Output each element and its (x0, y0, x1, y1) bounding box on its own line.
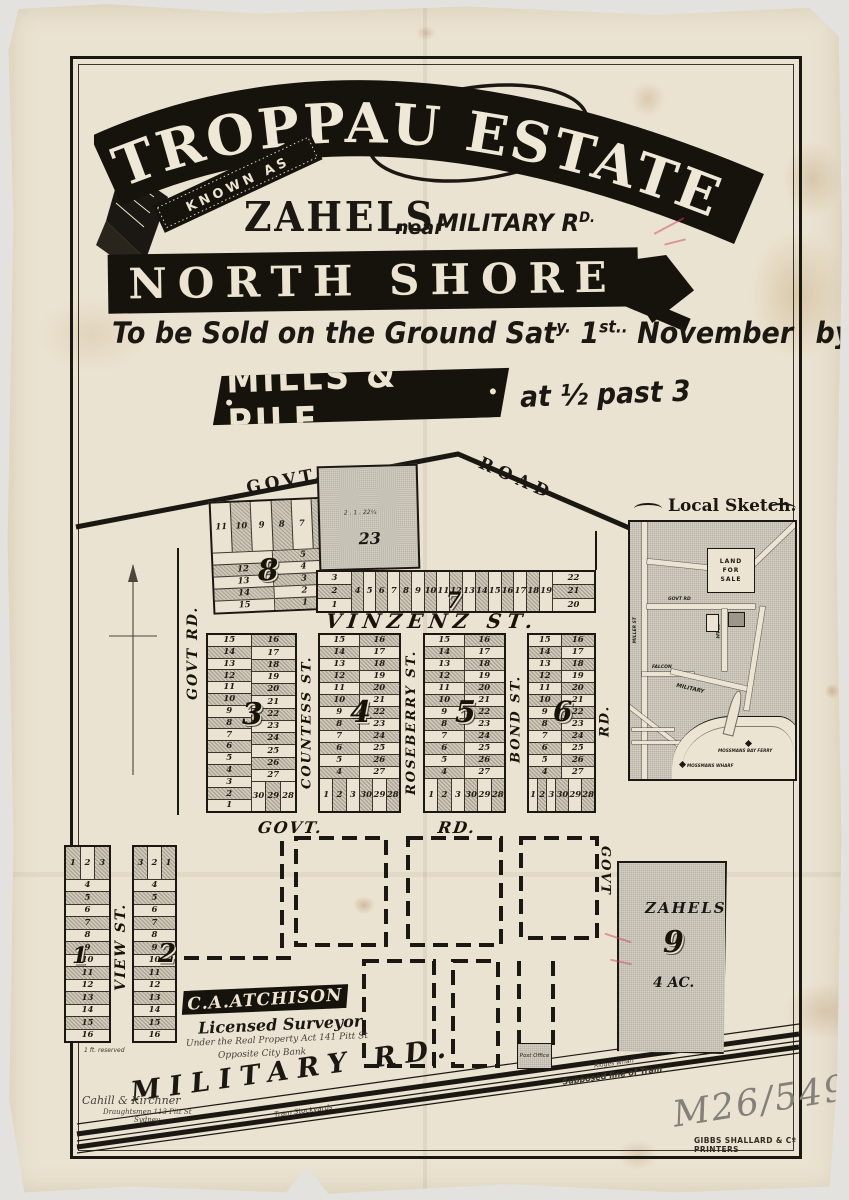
lot: 1 (320, 779, 332, 811)
sketch-road-east (744, 606, 765, 710)
lot: 13 (66, 991, 109, 1003)
lot: 4 (352, 572, 363, 611)
section-7-block: 321 45678910111213141516171819 222120 7 (316, 570, 596, 613)
lot: 26 (360, 754, 400, 766)
lot: 7 (320, 730, 359, 742)
poster-scan: TROPPAU ESTATE KNOWN AS ZAHELS near MILI… (0, 0, 849, 1200)
lot: 18 (252, 659, 296, 671)
lot: 11 (320, 682, 359, 694)
lot: 16 (66, 1029, 109, 1041)
lot: 18 (360, 658, 400, 670)
local-sketch-flourish-left (634, 503, 662, 514)
post-office-label: Post Office (520, 1053, 550, 1059)
lot: 4 (134, 880, 175, 891)
lot: 30 (359, 779, 372, 811)
lot: 11 (425, 682, 464, 694)
lot: 27 (562, 766, 595, 778)
lot: 5 (529, 754, 561, 766)
lot: 12 (66, 979, 109, 991)
lot: 25 (360, 742, 400, 754)
lot: 9 (250, 501, 272, 551)
block-23-dims: 2 . 1 . 22¼ (344, 509, 377, 517)
sketch-falcon-label: FALCON (652, 665, 672, 670)
lot: 5 (208, 752, 251, 764)
section-8-top-lots: 11109876 (211, 498, 333, 553)
lot: 8 (66, 929, 109, 941)
sketch-military-label: MILITARY (676, 683, 705, 695)
lot: 20 (252, 683, 296, 695)
lot: 6 (134, 904, 175, 916)
sketch-land-for-sale-box: LAND FOR SALE (707, 548, 755, 593)
lot: 3 (546, 779, 555, 811)
lot: 12 (134, 979, 175, 991)
lot: 12 (320, 670, 359, 682)
lot: 25 (562, 742, 595, 754)
lot: 4 (425, 766, 464, 778)
lot: 4 (208, 764, 251, 776)
section-5-number: 5 (455, 695, 476, 730)
lot: 2 (80, 847, 95, 879)
lot: 30 (252, 782, 266, 811)
lot: 28 (581, 779, 594, 811)
lot: 25 (465, 742, 505, 754)
section-4-bottom-lots: 123302928 (320, 778, 399, 811)
lot: 16 (501, 572, 514, 611)
zahels-owner-label: ZAHELS (645, 899, 727, 917)
lot: 26 (562, 754, 595, 766)
lot: 15 (320, 635, 359, 646)
lot: 6 (208, 740, 251, 752)
lot: 17 (252, 646, 296, 658)
section-8-number: 8 (257, 553, 279, 589)
lot: 15 (208, 635, 251, 646)
lot: 15 (425, 635, 464, 646)
lot: 14 (475, 572, 488, 611)
lot: 22 (553, 572, 594, 584)
lot: 5 (425, 754, 464, 766)
reserved-note: 1 ft. reserved (84, 1047, 125, 1054)
lot: 29 (477, 779, 490, 811)
section-5-bottom-lots: 123302928 (425, 778, 504, 811)
lot: 5 (66, 891, 109, 903)
lot: 12 (425, 670, 464, 682)
lot: 21 (553, 584, 594, 597)
lot: 18 (465, 658, 505, 670)
sketch-miller-label: MILLER ST (633, 617, 638, 643)
lot: 9 (411, 572, 423, 611)
section-3-bottom-lots: 302928 (252, 781, 296, 811)
right-road-rd-label: RD. (595, 698, 615, 744)
sketch-building1 (706, 614, 719, 632)
lot: 12 (529, 670, 561, 682)
lot: 17 (513, 572, 526, 611)
lot: 2 (332, 779, 345, 811)
sketch-land-for-sale-label: LAND FOR SALE (719, 557, 743, 584)
lot: 3 (208, 776, 251, 788)
lot: 20 (465, 682, 505, 694)
lot: 14 (320, 646, 359, 658)
lot: 26 (465, 754, 505, 766)
lot: 16 (562, 635, 595, 646)
section-2-top-lots: 321 (134, 847, 175, 880)
lot: 29 (568, 779, 581, 811)
draughtsman-address: Draughtsmen 113 Pitt St (103, 1108, 192, 1116)
lot: 15 (66, 1016, 109, 1028)
bond-st-label: BOND ST. (505, 643, 527, 795)
lot: 14 (134, 1004, 175, 1016)
lot: 26 (252, 757, 296, 769)
lot: 19 (360, 670, 400, 682)
lot: 3 (346, 779, 359, 811)
govt-rd-h-govt: GOVT. (257, 818, 325, 837)
sketch-govt-label: GOVT RD (668, 597, 691, 602)
lot: 6 (529, 742, 561, 754)
lot: 7 (425, 730, 464, 742)
lot: 7 (529, 730, 561, 742)
section-2-block: 321 45678910111213141516 2 (132, 845, 177, 1043)
lot: 25 (252, 744, 296, 756)
lot: 7 (134, 916, 175, 928)
lot: 24 (252, 732, 296, 744)
right-road-govt-label: GOVT (595, 835, 615, 907)
lot: 4 (66, 880, 109, 891)
lot: 11 (211, 503, 232, 553)
lot: 13 (462, 572, 475, 611)
lot: 14 (529, 646, 561, 658)
lot: 8 (270, 500, 292, 550)
section-1-block: 123 45678910111213141516 1 (64, 845, 111, 1043)
lot: 1 (208, 799, 251, 811)
lot: 17 (360, 646, 400, 658)
lot: 16 (360, 635, 400, 646)
countess-st-label: COUNTESS ST. (296, 637, 318, 807)
lot: 24 (562, 730, 595, 742)
sketch-road-sw2 (632, 728, 674, 731)
lot: 3 (134, 847, 147, 879)
lot: 27 (252, 769, 296, 781)
lot: 12 (208, 669, 251, 681)
lot: 20 (553, 598, 594, 611)
lot: 16 (134, 1029, 175, 1041)
lot: 19 (252, 671, 296, 683)
lot: 4 (320, 766, 359, 778)
lot: 13 (320, 658, 359, 670)
section-3-block: 151413121110987654321 161718192021222324… (206, 633, 297, 813)
lot: 1 (161, 847, 175, 879)
lot: 1 (425, 779, 437, 811)
section-6-bottom-lots: 123302928 (529, 778, 594, 811)
lot: 6 (320, 742, 359, 754)
lot: 13 (529, 658, 561, 670)
sketch-ferry-label: MOSSMANS BAY FERRY (718, 748, 772, 753)
sketch-building2 (728, 612, 745, 627)
lot: 15 (488, 572, 501, 611)
lot: 6 (66, 904, 109, 916)
lot: 6 (425, 742, 464, 754)
section-6-block: 151413121110987654 161718192021222324252… (527, 633, 596, 813)
section-7-right-lots: 222120 (552, 572, 594, 611)
lot: 8 (399, 572, 411, 611)
lot: 14 (208, 646, 251, 658)
draughtsman-city: Sydney (134, 1116, 160, 1124)
local-sketch-map: MILLER ST LAND FOR SALE GOVT RD TRAM FAL… (628, 520, 797, 781)
sketch-road-sw3 (632, 741, 680, 744)
section-4-block: 151413121110987654 161718192021222324252… (318, 633, 401, 813)
block-23: 23 2 . 1 . 22¼ (317, 464, 421, 572)
poster-paper: TROPPAU ESTATE KNOWN AS ZAHELS near MILI… (6, 3, 843, 1196)
lot: 30 (464, 779, 477, 811)
lot: 13 (134, 991, 175, 1003)
govt-rd-h-rd: RD. (437, 818, 478, 837)
lot: 18 (562, 658, 595, 670)
lot: 17 (562, 646, 595, 658)
lot: 15 (134, 1016, 175, 1028)
lot: 7 (290, 499, 312, 549)
section-1-top-lots: 123 (66, 847, 109, 880)
section-6-number: 6 (553, 695, 572, 728)
lot: 19 (539, 572, 552, 611)
lot: 11 (529, 682, 561, 694)
lot: 10 (230, 502, 252, 552)
lot: 5 (320, 754, 359, 766)
roseberry-st-label: ROSEBERRY ST. (400, 637, 423, 807)
post-office-box: Post Office (517, 1043, 552, 1069)
lot: 7 (66, 916, 109, 928)
lot: 24 (360, 730, 400, 742)
lot: 29 (265, 782, 280, 811)
lot: 16 (465, 635, 505, 646)
sketch-govt-road (647, 604, 755, 609)
lot: 20 (562, 682, 595, 694)
vinzenz-st-label: VINZENZ ST. (324, 609, 540, 633)
section-3-number: 3 (242, 697, 263, 732)
lot: 30 (555, 779, 568, 811)
lot: 18 (526, 572, 539, 611)
view-st-label: VIEW ST. (110, 861, 132, 1033)
sketch-road-top (647, 559, 709, 570)
zahels-block: ZAHELS 9 4 AC. (617, 861, 727, 1054)
block-23-number: 23 (358, 529, 381, 549)
zahels-number: 9 (663, 925, 684, 960)
lot: 2 (208, 787, 251, 799)
lot: 14 (425, 646, 464, 658)
lot: 5 (134, 891, 175, 903)
lot: 4 (529, 766, 561, 778)
lot: 3 (318, 572, 351, 584)
lot: 6 (375, 572, 387, 611)
lot: 1 (529, 779, 537, 811)
lot: 2 (318, 584, 351, 597)
lot: 19 (465, 670, 505, 682)
printer-credit: GIBBS SHALLARD & Cº PRINTERS (694, 1136, 843, 1154)
draughtsman-credit: Cahill & Kirchner (82, 1094, 181, 1107)
lot: 13 (425, 658, 464, 670)
zahels-area-label: 4 AC. (653, 975, 694, 991)
lot: 15 (215, 598, 274, 613)
lot: 2 (537, 779, 546, 811)
lot: 28 (280, 782, 295, 811)
sketch-wharf-label: MOSSMANS WHARF (687, 763, 733, 768)
local-sketch-flourish-right (768, 503, 796, 514)
lot: 7 (387, 572, 399, 611)
lot: 15 (529, 635, 561, 646)
north-arrow (109, 564, 157, 775)
lot: 2 (437, 779, 450, 811)
section-7-left-lots: 321 (318, 572, 352, 611)
lot: 5 (363, 572, 375, 611)
lot: 1 (66, 847, 80, 879)
left-govt-rd-label: GOVT RD. (182, 555, 204, 750)
section-4-number: 4 (350, 695, 371, 730)
lot: 24 (465, 730, 505, 742)
lot: 16 (252, 635, 296, 646)
lot: 29 (372, 779, 385, 811)
lot: 13 (208, 658, 251, 670)
lot: 3 (94, 847, 109, 879)
lot: 20 (360, 682, 400, 694)
section-1-number: 1 (72, 943, 87, 969)
section-5-block: 151413121110987654 161718192021222324252… (423, 633, 506, 813)
lot: 2 (147, 847, 161, 879)
lot: 27 (465, 766, 505, 778)
lot: 28 (491, 779, 504, 811)
sketch-tram-road (722, 609, 727, 671)
lot: 3 (451, 779, 464, 811)
lot: 17 (465, 646, 505, 658)
lot: 10 (424, 572, 437, 611)
lot: 14 (66, 1004, 109, 1016)
lot: 28 (386, 779, 399, 811)
lot: 27 (360, 766, 400, 778)
section-2-number: 2 (158, 939, 176, 969)
lot: 11 (208, 681, 251, 693)
lot: 19 (562, 670, 595, 682)
